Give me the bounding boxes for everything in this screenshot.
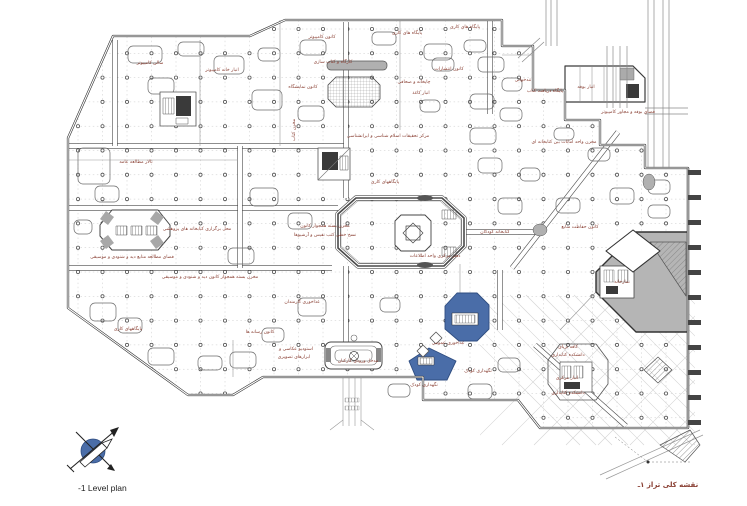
plan-label: پایگاه دریافت کتاب <box>527 87 564 94</box>
plan-label: سالن کامپیوتر <box>136 60 164 66</box>
plan-label: مخزن واحد امانات بین کتابخانه ای <box>532 139 597 145</box>
plan-label: کارگاه و کتاب سازی <box>314 58 354 65</box>
plan-label: پایگاههای کاری <box>371 178 400 185</box>
plan-label: نمازخانه <box>614 280 630 285</box>
escalator-core-main <box>445 293 489 341</box>
atrium-grid-pavilion <box>328 77 380 107</box>
plan-label: انبار کاغذ <box>412 90 429 96</box>
plan-label: فضای مطالعه منابع دید و شنودی و موسیقی <box>90 255 174 260</box>
north-arrow-icon <box>67 427 119 472</box>
plan-label: نگهداری کودک <box>464 367 492 374</box>
plan-label: کافه تریای <box>558 344 579 350</box>
plan-label: پایگاههای کاری <box>114 325 143 332</box>
plan-label: مخزن بسته همجوار کانون دید و شنودی و موس… <box>162 274 259 280</box>
hatched-diamond <box>644 357 672 383</box>
plan-label: نسخ خطی کتب نفیس و آرشیوها <box>294 232 356 238</box>
plan-label: کانون کامپیوتر <box>307 34 336 40</box>
stair-cluster-centre <box>318 148 350 180</box>
plan-label: مخزن کتاب <box>291 118 297 141</box>
plan-label: انبار بوفه <box>577 85 594 90</box>
plan-label: محل برگزاری کتابخانه های پژوهشی <box>163 225 232 232</box>
plan-label: کانون نمایشگاه <box>288 83 318 90</box>
floor-plan-drawing: سالن کامپیوترانبار خانه کامپیوترکانون کا… <box>0 0 747 506</box>
plan-label: استودیو عکاسی و <box>278 346 313 352</box>
stair-cluster-topleft <box>160 92 196 126</box>
plan-label: کانون انتشارات <box>434 66 464 72</box>
east-grey-building <box>596 230 688 332</box>
entrance-walkway <box>330 377 374 430</box>
stair-drum-2 <box>643 174 655 190</box>
buffet-annex-block <box>565 66 645 102</box>
floor-plan-page: سالن کامپیوترانبار خانه کامپیوترکانون کا… <box>0 0 747 506</box>
plan-label: انبار خانه کامپیوتر <box>204 67 238 73</box>
plan-label: مخزن بسته همجوار کانون <box>300 223 350 229</box>
stair-drum-1 <box>533 224 547 236</box>
plan-label: کتابخانه کودکان <box>480 229 510 235</box>
plan-label: غذاخوری عمومی <box>432 341 465 346</box>
plan-label: دانشکده کتابداری <box>551 390 584 396</box>
plan-label: چاپخانه و صحافی <box>397 80 430 85</box>
southeast-tip <box>600 430 703 479</box>
retaining-wall <box>688 168 701 428</box>
plan-label: فضای بوفه و مجاور کامپیوتر <box>600 109 655 115</box>
plan-label: مدخل ورودی کارکنان <box>338 358 379 364</box>
plan-label: کانون رسانه ها <box>246 329 275 335</box>
plan-label: غذاخوری کارمندان <box>284 299 320 305</box>
plan-label: کانون حفاظت منابع <box>561 224 599 230</box>
plan-label: پایگاه های کاری <box>450 23 481 30</box>
west-stair-hall <box>100 210 170 250</box>
level-plan-title: -1 Level plan <box>78 483 127 493</box>
plan-label: دفتر مرکزی واحد اطلاعات <box>410 253 461 259</box>
plan-label: پایگاه های کاری <box>392 29 423 36</box>
plan-caption-fa: نقشه کلی تراز ۱ـ <box>637 481 699 489</box>
plan-label: تالار مطالعه عامه <box>119 160 153 165</box>
plan-label: انبار مرکزی <box>556 375 578 381</box>
plan-label: ابزارهای تصویری <box>278 355 311 360</box>
plan-label: نگهداری کودک <box>410 381 438 388</box>
plan-label: مرکز تحقیقات اسلام شناسی و ایرانشناسی <box>347 133 430 139</box>
escalator-core-south <box>409 348 456 380</box>
plan-label: تندخوانی <box>515 78 532 83</box>
plan-label: دانشکده کتابداری <box>551 352 584 358</box>
